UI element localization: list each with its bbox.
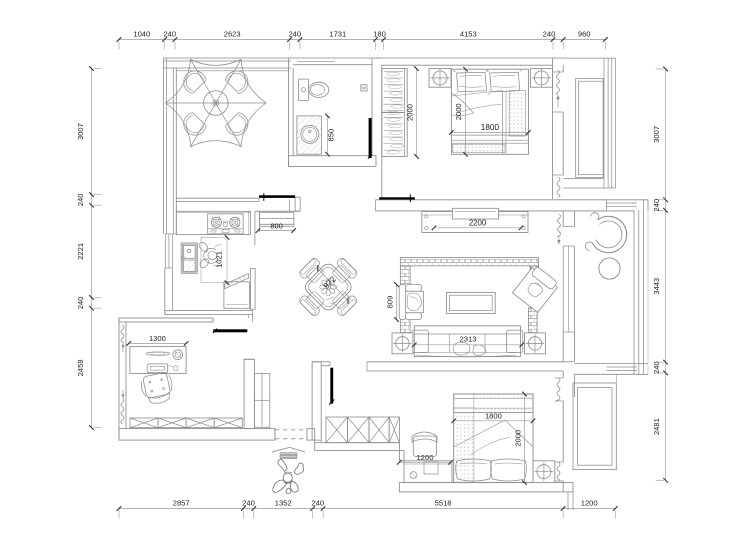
svg-text:2000: 2000: [454, 103, 463, 120]
svg-text:M: M: [362, 86, 366, 91]
svg-text:5518: 5518: [435, 498, 452, 507]
svg-text:240: 240: [652, 361, 661, 374]
svg-text:2857: 2857: [173, 498, 190, 507]
svg-text:1200: 1200: [581, 498, 598, 507]
svg-text:180: 180: [373, 30, 386, 39]
svg-text:240: 240: [76, 194, 85, 207]
svg-text:850: 850: [327, 129, 336, 142]
svg-text:1300: 1300: [149, 334, 166, 343]
svg-text:1021: 1021: [214, 251, 223, 268]
svg-text:2221: 2221: [76, 243, 85, 260]
svg-text:2000: 2000: [405, 104, 414, 121]
svg-text:240: 240: [543, 30, 556, 39]
svg-text:1800: 1800: [481, 123, 500, 132]
svg-text:240: 240: [652, 199, 661, 212]
svg-text:1731: 1731: [329, 30, 346, 39]
svg-text:800: 800: [270, 221, 282, 230]
svg-text:240: 240: [163, 30, 176, 39]
svg-text:240: 240: [311, 498, 324, 507]
svg-text:3007: 3007: [76, 123, 85, 140]
svg-text:2481: 2481: [652, 418, 661, 435]
svg-text:1352: 1352: [275, 498, 292, 507]
svg-text:2623: 2623: [224, 30, 241, 39]
svg-text:4153: 4153: [460, 30, 477, 39]
svg-text:960: 960: [578, 30, 591, 39]
svg-text:240: 240: [76, 297, 85, 310]
svg-text:2200: 2200: [469, 218, 487, 227]
svg-text:2000: 2000: [514, 430, 523, 447]
svg-text:240: 240: [288, 30, 301, 39]
svg-text:3443: 3443: [652, 278, 661, 295]
svg-text:1040: 1040: [133, 30, 150, 39]
svg-text:240: 240: [242, 498, 255, 507]
svg-text:809: 809: [385, 296, 394, 309]
svg-text:2313: 2313: [460, 335, 477, 344]
svg-text:1800: 1800: [485, 411, 502, 420]
svg-text:3007: 3007: [652, 126, 661, 143]
svg-text:2458: 2458: [76, 359, 85, 376]
svg-text:1200: 1200: [417, 453, 434, 462]
